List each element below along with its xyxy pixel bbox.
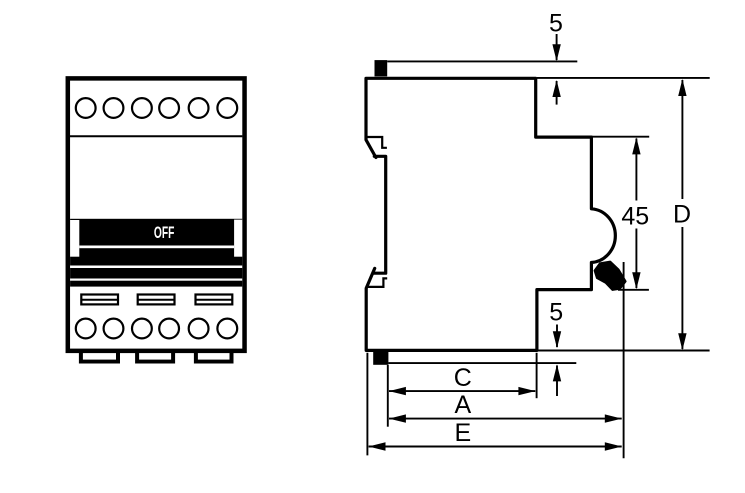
svg-text:5: 5	[549, 9, 563, 37]
svg-text:D: D	[673, 201, 691, 229]
svg-text:E: E	[454, 419, 471, 447]
svg-text:5: 5	[549, 299, 563, 327]
svg-text:45: 45	[621, 202, 649, 230]
svg-text:OFF: OFF	[154, 224, 175, 242]
svg-text:A: A	[454, 391, 471, 419]
svg-text:C: C	[454, 364, 472, 392]
